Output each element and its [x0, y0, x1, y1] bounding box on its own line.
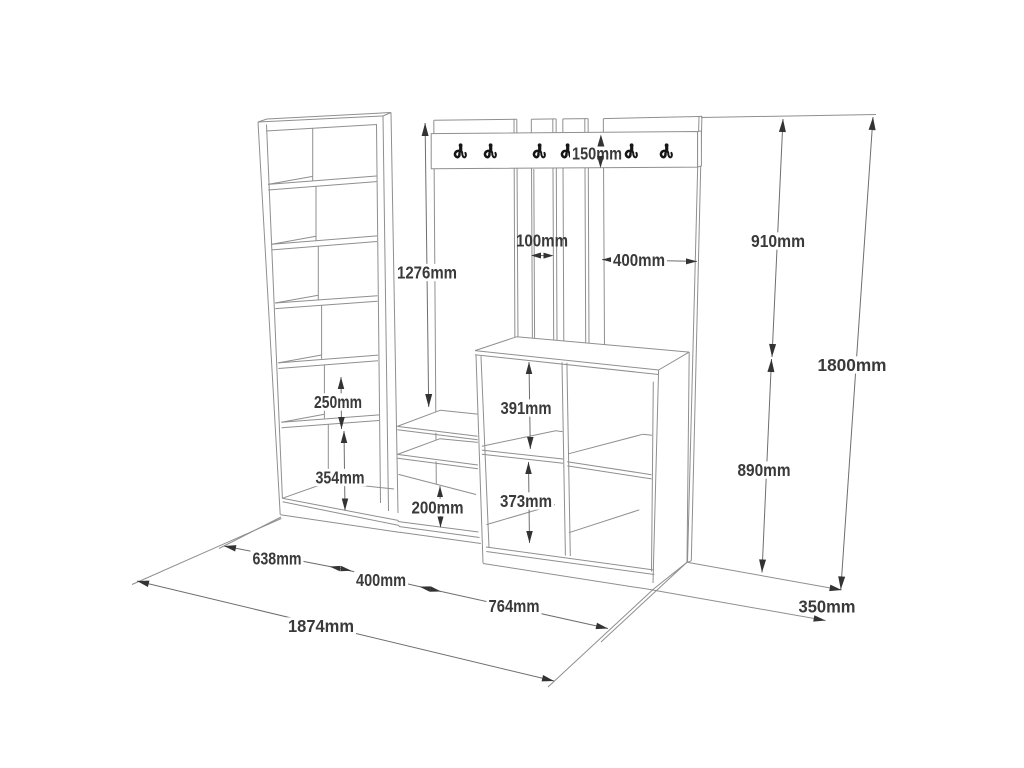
svg-text:1276mm: 1276mm [397, 263, 457, 283]
svg-text:150mm: 150mm [572, 144, 622, 164]
svg-text:764mm: 764mm [489, 596, 540, 616]
svg-text:400mm: 400mm [356, 570, 406, 590]
svg-text:354mm: 354mm [316, 468, 365, 488]
svg-text:910mm: 910mm [751, 231, 805, 251]
svg-text:100mm: 100mm [516, 231, 568, 251]
svg-text:250mm: 250mm [314, 392, 362, 412]
svg-text:890mm: 890mm [738, 460, 791, 480]
svg-text:1800mm: 1800mm [818, 355, 887, 375]
svg-text:638mm: 638mm [253, 549, 302, 569]
svg-text:200mm: 200mm [412, 498, 464, 518]
svg-text:350mm: 350mm [799, 597, 856, 617]
svg-text:373mm: 373mm [500, 491, 552, 511]
svg-text:391mm: 391mm [501, 398, 552, 418]
svg-text:400mm: 400mm [613, 250, 665, 270]
svg-text:1874mm: 1874mm [288, 616, 354, 636]
